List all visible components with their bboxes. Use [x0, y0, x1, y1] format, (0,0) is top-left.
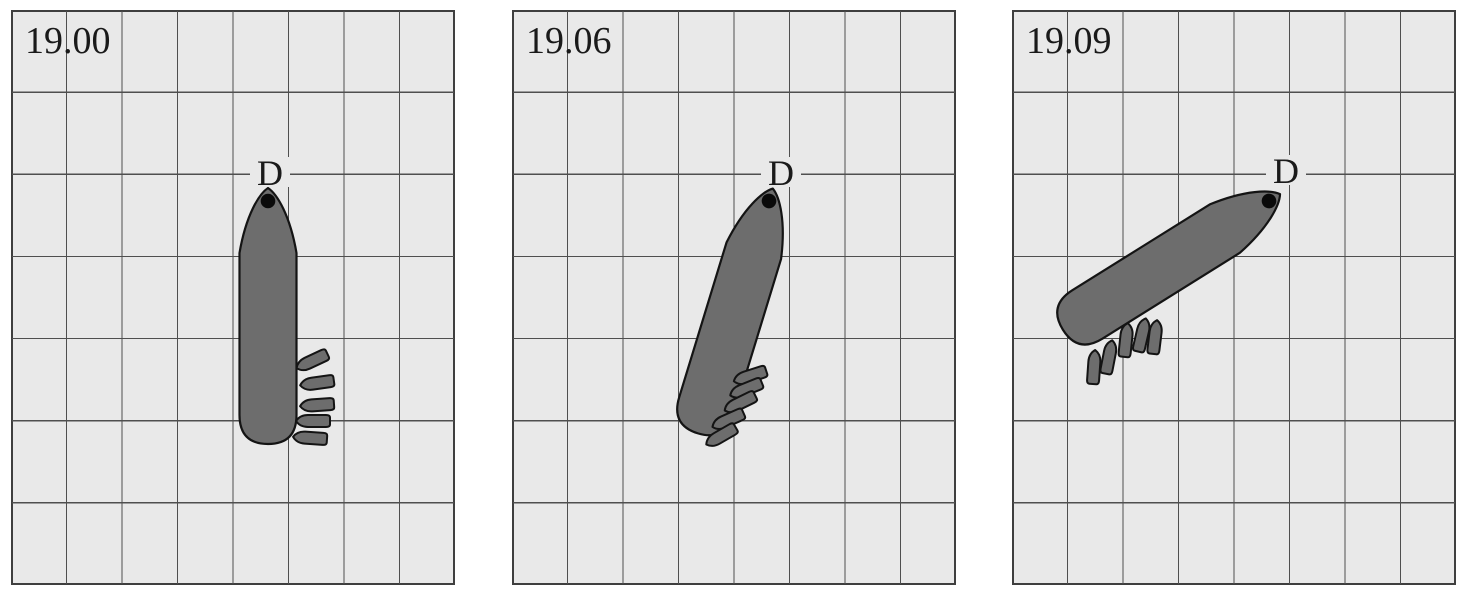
- ship-hull-group: [240, 188, 297, 444]
- grid: [12, 11, 454, 584]
- panel-time-2: D 19.06: [512, 10, 956, 585]
- navigation-grid-panel-3: D 19.09: [1012, 10, 1456, 585]
- figure-ship-turning-sequence: D 19.00 D 19.06 D 19.09: [0, 0, 1468, 600]
- bow-point-label: D: [257, 153, 283, 193]
- panel-time-3: D 19.09: [1012, 10, 1456, 585]
- ship-hull: [240, 188, 297, 444]
- tugboat: [296, 415, 330, 427]
- ship-d: [240, 188, 297, 444]
- panel-time-1: D 19.00: [11, 10, 455, 585]
- bow-point-label: D: [1273, 151, 1299, 191]
- time-label: 19.00: [25, 20, 111, 62]
- bow-point-label: D: [768, 153, 794, 193]
- navigation-grid-panel-2: D 19.06: [512, 10, 956, 585]
- time-label: 19.06: [526, 20, 612, 62]
- navigation-grid-panel-1: D 19.00: [11, 10, 455, 585]
- bow-point-dot: [261, 194, 276, 209]
- time-label: 19.09: [1026, 20, 1112, 62]
